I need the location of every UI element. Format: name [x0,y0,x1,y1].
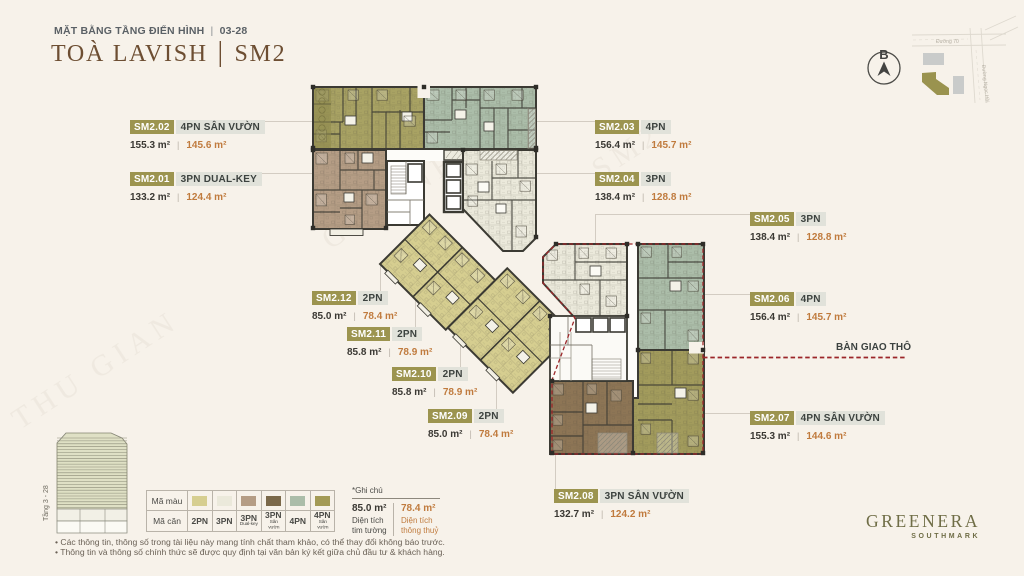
svg-text:Tầng 3 - 28: Tầng 3 - 28 [41,485,50,521]
svg-text:THU GIAN: THU GIAN [6,304,185,436]
svg-text:B: B [879,47,888,62]
svg-text:Đường 70: Đường 70 [936,39,959,45]
svg-text:Đường Ngọc Hồi: Đường Ngọc Hồi [980,65,990,103]
